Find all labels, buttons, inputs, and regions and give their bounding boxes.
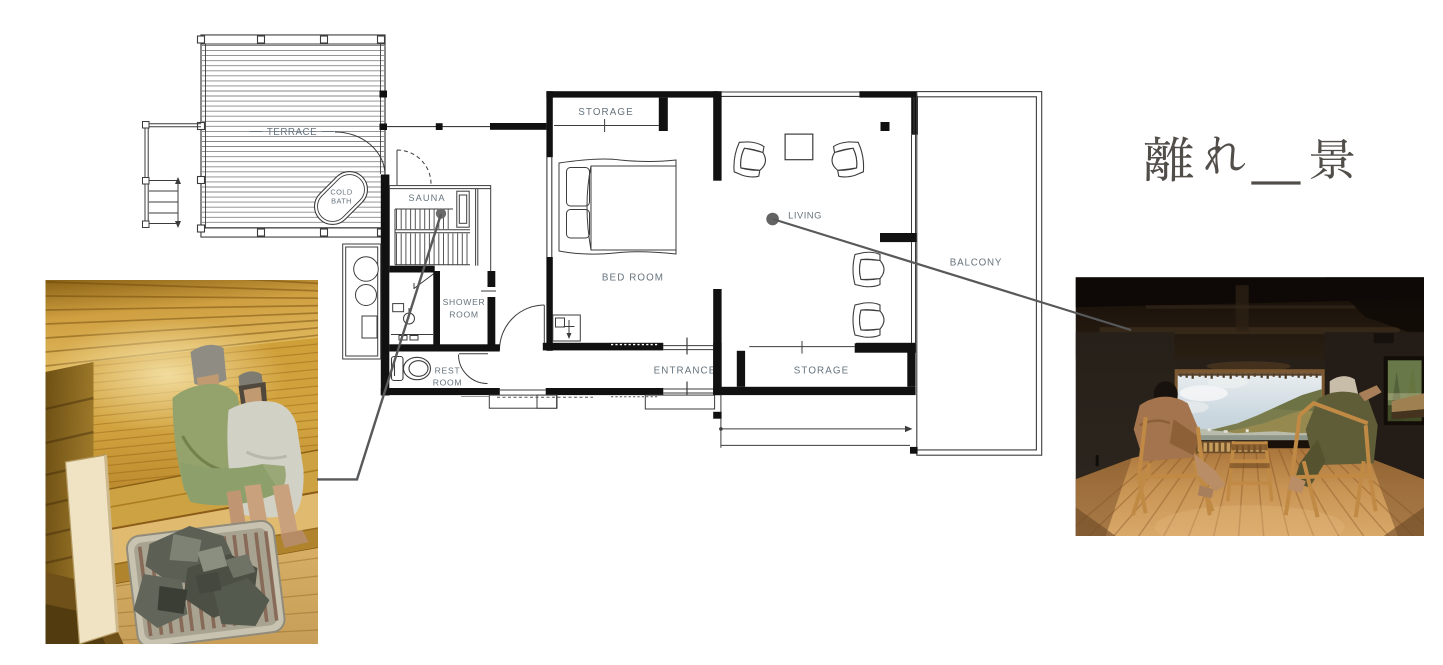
svg-text:COLD: COLD <box>330 188 352 197</box>
svg-text:BALCONY: BALCONY <box>950 258 1002 269</box>
svg-text:SAUNA: SAUNA <box>408 193 445 203</box>
svg-text:REST: REST <box>435 366 461 376</box>
svg-text:ROOM: ROOM <box>449 310 479 320</box>
svg-text:SHOWER: SHOWER <box>443 297 486 307</box>
svg-text:ENTRANCE: ENTRANCE <box>654 366 717 377</box>
svg-text:STORAGE: STORAGE <box>794 366 849 377</box>
svg-text:TERRACE: TERRACE <box>267 127 317 138</box>
svg-text:STORAGE: STORAGE <box>578 107 633 118</box>
svg-text:ROOM: ROOM <box>433 378 463 388</box>
svg-text:LIVING: LIVING <box>788 210 822 221</box>
svg-text:BATH: BATH <box>331 197 352 206</box>
svg-text:BED ROOM: BED ROOM <box>602 273 664 284</box>
